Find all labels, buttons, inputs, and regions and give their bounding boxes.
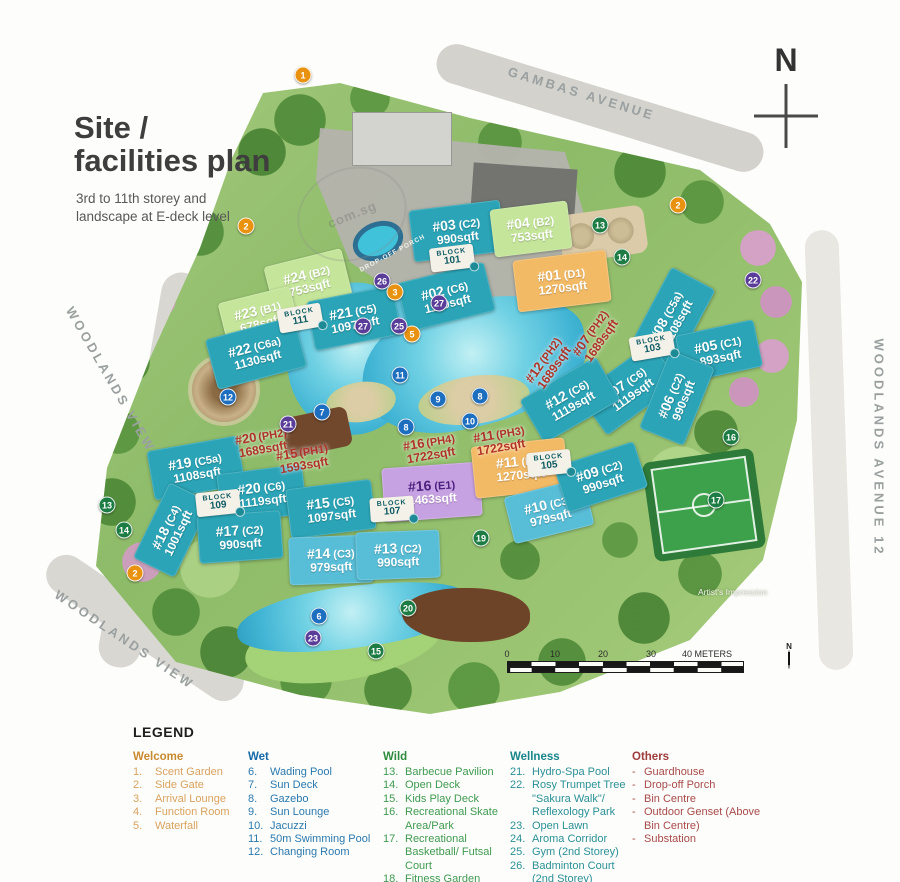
legend-item-label: Sun Lounge <box>270 806 380 819</box>
legend-item-label: Scent Garden <box>155 766 241 779</box>
legend-item-label: Gym (2nd Storey) <box>532 846 632 859</box>
legend-item: 25. Gym (2nd Storey) <box>510 846 632 859</box>
facility-marker: 22 <box>745 272 762 289</box>
legend-item: - Bin Centre <box>632 793 764 806</box>
legend-item-label: Jacuzzi <box>270 820 380 833</box>
legend-item-number: 4. <box>133 806 155 819</box>
legend-item: 1. Scent Garden <box>133 766 241 779</box>
legend-column-wild: Wild 13. Barbecue Pavilion 14. Open Deck… <box>383 750 505 882</box>
legend-item: 26. Badminton Court (2nd Storey) <box>510 860 632 882</box>
legend-item-number: 26. <box>510 860 532 882</box>
legend-column-others: Others - Guardhouse - Drop-off Porch - B… <box>632 750 764 846</box>
facility-marker: 14 <box>116 522 133 539</box>
compass-north-label: N <box>762 42 810 79</box>
scale-bar-compass-icon: N <box>778 642 800 678</box>
scale-tick-label: 30 <box>646 649 656 659</box>
legend-item: 17. Recreational Basketball/ Futsal Cour… <box>383 833 505 873</box>
legend-header: Wellness <box>510 750 632 764</box>
facility-marker: 27 <box>431 295 448 312</box>
legend-column-wet: Wet 6. Wading Pool 7. Sun Deck 8. Gazebo… <box>248 750 380 860</box>
legend-items: 21. Hydro-Spa Pool 22. Rosy Trumpet Tree… <box>510 766 632 882</box>
legend-item-number: - <box>632 793 644 806</box>
legend-item-number: 6. <box>248 766 270 779</box>
legend-item-label: Open Deck <box>405 779 505 792</box>
scale-tick-label: 40 METERS <box>682 649 732 659</box>
legend-item-number: 9. <box>248 806 270 819</box>
legend-header: Welcome <box>133 750 241 764</box>
legend-item-number: 15. <box>383 793 405 806</box>
legend-header: Others <box>632 750 764 764</box>
legend-item-label: Outdoor Genset (Above Bin Centre) <box>644 806 764 833</box>
legend-items: 13. Barbecue Pavilion 14. Open Deck 15. … <box>383 766 505 882</box>
facility-marker: 11 <box>392 367 409 384</box>
legend-item-label: Barbecue Pavilion <box>405 766 505 779</box>
legend-items: - Guardhouse - Drop-off Porch - Bin Cent… <box>632 766 764 846</box>
legend-column-welcome: Welcome 1. Scent Garden 2. Side Gate 3. … <box>133 750 241 833</box>
legend-item-number: 11. <box>248 833 270 846</box>
road-label-woodlands-avenue-12: WOODLANDS AVENUE 12 <box>872 338 887 556</box>
legend-item-label: Fitness Garden <box>405 873 505 882</box>
legend-item-label: Recreational Basketball/ Futsal Court <box>405 833 505 873</box>
legend-item-label: Side Gate <box>155 779 241 792</box>
facility-marker: 2 <box>127 565 144 582</box>
legend-item-number: 21. <box>510 766 532 779</box>
facility-marker: 17 <box>708 492 725 509</box>
legend-header: Wet <box>248 750 380 764</box>
legend-item: - Outdoor Genset (Above Bin Centre) <box>632 806 764 833</box>
legend-item-number: 5. <box>133 820 155 833</box>
page-title: Site / facilities plan <box>74 112 270 177</box>
legend-header: Wild <box>383 750 505 764</box>
legend-item: 21. Hydro-Spa Pool <box>510 766 632 779</box>
legend-item-number: 18. <box>383 873 405 882</box>
facility-marker: 1 <box>295 67 312 84</box>
legend-item-label: Badminton Court (2nd Storey) <box>532 860 632 882</box>
legend-item-label: Bin Centre <box>644 793 764 806</box>
legend-item: 5. Waterfall <box>133 820 241 833</box>
facility-marker: 20 <box>400 600 417 617</box>
legend-item-label: Rosy Trumpet Tree "Sakura Walk"/ Reflexo… <box>532 779 632 819</box>
legend-item-number: 25. <box>510 846 532 859</box>
legend-item-label: Gazebo <box>270 793 380 806</box>
legend-item: - Guardhouse <box>632 766 764 779</box>
legend-item-number: - <box>632 779 644 792</box>
legend-item-number: 22. <box>510 779 532 819</box>
legend-item-number: 16. <box>383 806 405 833</box>
facility-marker: 13 <box>99 497 116 514</box>
legend-item-number: 12. <box>248 846 270 859</box>
facility-marker: 3 <box>387 284 404 301</box>
legend-item: 6. Wading Pool <box>248 766 380 779</box>
legend-item: 9. Sun Lounge <box>248 806 380 819</box>
facility-marker: 14 <box>614 249 631 266</box>
page-subtitle: 3rd to 11th storey and landscape at E-de… <box>76 190 230 225</box>
facility-marker: 15 <box>368 643 385 660</box>
legend-item: 2. Side Gate <box>133 779 241 792</box>
legend-item-number: 8. <box>248 793 270 806</box>
legend-item-label: Sun Deck <box>270 779 380 792</box>
scale-bar-segments <box>507 667 744 673</box>
legend-item-number: 23. <box>510 820 532 833</box>
legend-item-number: - <box>632 806 644 833</box>
legend-item-label: Arrival Lounge <box>155 793 241 806</box>
facility-marker: 19 <box>473 530 490 547</box>
legend-item-label: Hydro-Spa Pool <box>532 766 632 779</box>
legend-items: 6. Wading Pool 7. Sun Deck 8. Gazebo 9. … <box>248 766 380 860</box>
legend-item-number: 24. <box>510 833 532 846</box>
legend-item: - Drop-off Porch <box>632 779 764 792</box>
legend-item: 3. Arrival Lounge <box>133 793 241 806</box>
legend-item: 16. Recreational Skate Area/Park <box>383 806 505 833</box>
legend-item-number: 2. <box>133 779 155 792</box>
legend-item-label: 50m Swimming Pool <box>270 833 380 846</box>
legend-item: 7. Sun Deck <box>248 779 380 792</box>
legend-item-number: 14. <box>383 779 405 792</box>
facility-marker: 21 <box>280 416 297 433</box>
legend-item-label: Open Lawn <box>532 820 632 833</box>
legend-title: LEGEND <box>133 724 194 740</box>
legend-item-label: Changing Room <box>270 846 380 859</box>
legend-item-number: - <box>632 766 644 779</box>
legend-item-label: Substation <box>644 833 764 846</box>
site-facilities-plan: #03(C2) 990sqft #04(B2) 753sqft #02(C6) … <box>0 0 900 882</box>
legend-item: - Substation <box>632 833 764 846</box>
legend-column-wellness: Wellness 21. Hydro-Spa Pool 22. Rosy Tru… <box>510 750 632 882</box>
legend-items: 1. Scent Garden 2. Side Gate 3. Arrival … <box>133 766 241 833</box>
legend-item: 24. Aroma Corridor <box>510 833 632 846</box>
legend-item: 8. Gazebo <box>248 793 380 806</box>
legend-item-number: 3. <box>133 793 155 806</box>
artist-impression-note: Artist's Impression <box>698 587 767 597</box>
legend-item-label: Guardhouse <box>644 766 764 779</box>
facility-marker: 12 <box>220 389 237 406</box>
legend-item: 14. Open Deck <box>383 779 505 792</box>
legend-item-label: Recreational Skate Area/Park <box>405 806 505 833</box>
scale-bar: 010203040 METERS <box>507 646 757 680</box>
legend-item-label: Kids Play Deck <box>405 793 505 806</box>
legend-item-label: Drop-off Porch <box>644 779 764 792</box>
facility-marker: 25 <box>391 318 408 335</box>
scale-tick-label: 20 <box>598 649 608 659</box>
facility-marker: 2 <box>670 197 687 214</box>
legend-item-label: Aroma Corridor <box>532 833 632 846</box>
legend-item-label: Waterfall <box>155 820 241 833</box>
facility-marker: 27 <box>355 318 372 335</box>
scale-tick-label: 10 <box>550 649 560 659</box>
facility-marker: 7 <box>314 404 331 421</box>
legend-item: 18. Fitness Garden <box>383 873 505 882</box>
facility-marker: 6 <box>311 608 328 625</box>
legend-item-number: 7. <box>248 779 270 792</box>
legend-item: 15. Kids Play Deck <box>383 793 505 806</box>
facility-marker: 10 <box>462 413 479 430</box>
legend-item-number: 13. <box>383 766 405 779</box>
legend-item-label: Function Room <box>155 806 241 819</box>
legend-item-label: Wading Pool <box>270 766 380 779</box>
facility-marker: 23 <box>305 630 322 647</box>
legend-item: 11. 50m Swimming Pool <box>248 833 380 846</box>
facility-marker: 8 <box>398 419 415 436</box>
legend-item: 23. Open Lawn <box>510 820 632 833</box>
facility-marker: 9 <box>430 391 447 408</box>
legend-item: 13. Barbecue Pavilion <box>383 766 505 779</box>
legend-item-number: 17. <box>383 833 405 873</box>
legend-item: 4. Function Room <box>133 806 241 819</box>
facility-marker: 8 <box>472 388 489 405</box>
facility-marker: 16 <box>723 429 740 446</box>
legend-item-number: - <box>632 833 644 846</box>
legend-item: 12. Changing Room <box>248 846 380 859</box>
facility-marker: 2 <box>238 218 255 235</box>
legend-item: 22. Rosy Trumpet Tree "Sakura Walk"/ Ref… <box>510 779 632 819</box>
legend-item: 10. Jacuzzi <box>248 820 380 833</box>
legend-item-number: 1. <box>133 766 155 779</box>
compass-needle-icon <box>788 650 790 669</box>
facility-marker: 26 <box>374 273 391 290</box>
compass-cross-icon <box>754 84 818 148</box>
facility-marker: 13 <box>592 217 609 234</box>
scale-tick-label: 0 <box>504 649 509 659</box>
legend-item-number: 10. <box>248 820 270 833</box>
